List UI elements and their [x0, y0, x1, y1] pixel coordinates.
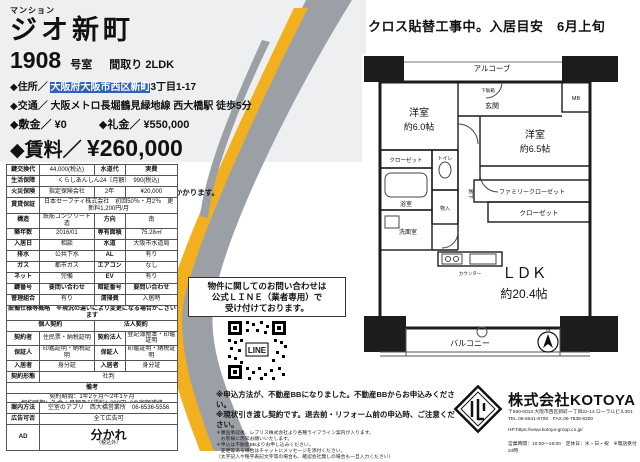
- cell-value: 身分証: [125, 361, 177, 372]
- cell-value: 有り: [125, 272, 177, 283]
- rent-value: ¥260,000: [87, 135, 183, 161]
- note-bold: ※現状引き渡し契約です。退去前・リフォーム前の申込時、ご注意ください。: [216, 410, 462, 430]
- table-row: 入居者 身分証 入居者 身分証: [7, 361, 178, 372]
- cell-label: ネット: [7, 272, 40, 283]
- cell-value: 印鑑証明・納税証明: [40, 346, 94, 361]
- cell-value: 社判: [40, 372, 178, 383]
- cell-label: 保証人: [94, 346, 125, 361]
- guide-table: 案内方法 空室のアプリ 西大橋営業所 06-6536-5556 広告可否 全て広…: [6, 402, 178, 451]
- table-row: AD 分かれ 〈税込外〉: [7, 425, 178, 451]
- cell-label: 入居日: [7, 239, 40, 250]
- family-closet-label: ファミリークローゼット: [499, 188, 565, 196]
- company-name: 株式会社KOTOYA: [508, 389, 638, 410]
- access-label: ◆交通／: [10, 101, 48, 112]
- address-label: ◆住所／: [10, 82, 48, 93]
- cell-label: 水道代: [94, 165, 125, 176]
- contract-header-personal: 個人契約: [7, 320, 95, 331]
- table-row: 契約者 住民票・納税証明 契約法人 登記簿謄本・印鑑証明: [7, 331, 178, 346]
- line-notice-box: 物件に関してのお問い合わせは 公式ＬＩＮＥ（業者専用）で 受け付けております。: [188, 277, 346, 317]
- ad-value-cell: 分かれ 〈税込外〉: [40, 425, 178, 451]
- cell-label: 契約形態: [7, 372, 40, 383]
- bath-label: 浴室: [400, 200, 412, 208]
- cell-label: 入居者: [7, 361, 40, 372]
- table-row: ガス 都市ガス エアコン なし: [7, 261, 178, 272]
- company-address: 〒550-0013 大阪市西区新町一丁目22-14 ローラルビル301: [508, 410, 638, 417]
- counter-label: カウンター: [459, 270, 482, 277]
- table-row: 個人契約 法人契約: [7, 320, 178, 331]
- table-row: 管理組合 有り 清掃費 入居時: [7, 294, 178, 305]
- notice-line: 公式ＬＩＮＥ（業者専用）で: [189, 292, 345, 303]
- madori-label: 間取り: [109, 59, 142, 71]
- table-row: 備考: [7, 383, 178, 394]
- construction-banner: クロス貼替工事中。入居目安 6月上旬: [368, 16, 634, 35]
- shikikin-label: ◆敷金／: [10, 119, 51, 131]
- table-row: 広告可否 全て広告可: [7, 414, 178, 425]
- wide-note: 設備仕様等概略 ※現況の違いにより変更になる場合がございます: [7, 305, 178, 320]
- cell-label: 築年数: [7, 228, 40, 239]
- alcove-label: アルコーブ: [474, 63, 511, 73]
- remarks-title: 備考: [7, 383, 178, 394]
- ldk-size: 約20.4帖: [500, 286, 547, 301]
- toilet-icon: [439, 162, 451, 178]
- cell-value: ¥20,000: [125, 187, 177, 198]
- cell-value: 印鑑証明・納税証明: [125, 346, 177, 361]
- closet1-label: クローゼット: [389, 156, 422, 164]
- access-line: ◆交通／ 大阪メトロ長堀鶴見緑地線 西大橋駅 徒歩5分: [10, 97, 360, 112]
- table-row: ネット 完備 EV 有り: [7, 272, 178, 283]
- door-arc: [458, 124, 478, 144]
- cell-value: 75.28㎡: [125, 228, 177, 239]
- table-row: 契約形態 社判: [7, 372, 178, 383]
- cell-label: 賃貸保証: [7, 198, 40, 214]
- room-line: 1908 号室 間取り 2LDK: [10, 47, 360, 74]
- cell-label: 管理組合: [7, 294, 40, 305]
- room1-label: 洋室: [409, 106, 429, 119]
- guide-value: 空室のアプリ 西大橋営業所 06-6536-5556: [40, 403, 178, 414]
- room-suffix: 号室: [70, 59, 92, 71]
- ad-value: 分かれ: [41, 429, 176, 441]
- kitchen-sink-icon: [470, 254, 496, 264]
- contract-header-corporate: 法人契約: [94, 320, 178, 331]
- table-row: 鍵番号 要問い合わせ 暗証番号 要問い合わせ: [7, 283, 178, 294]
- cell-label: 契約法人: [94, 331, 125, 346]
- cell-value: 有り: [125, 250, 177, 261]
- cell-label: 暗証番号: [94, 283, 125, 294]
- rent-label: ◆賃料／: [10, 140, 82, 161]
- mb-label: MB: [572, 96, 581, 102]
- toilet-label: トイレ: [437, 156, 452, 162]
- table-row: 排水 公共下水 AL 有り: [7, 250, 178, 261]
- address-line: ◆住所／ 大阪府大阪市西区新町3丁目1-17: [10, 78, 360, 93]
- company-url[interactable]: HP:https://www.kotoya-group.co.jp/: [508, 428, 638, 435]
- door-arc: [442, 232, 458, 248]
- company-telfax: TEL.06-6541-8708 FAX.06-7636-8200: [508, 417, 638, 424]
- cell-label: 鍵交換代: [7, 165, 40, 176]
- room2-label: 洋室: [525, 128, 545, 141]
- room-labels: 下駄箱 玄関 MB 洋室 約6.0帖 洋室 約6.5帖 クローゼット トイレ 廊…: [389, 87, 580, 348]
- balcony-label: バルコニー: [450, 339, 490, 348]
- closet2-label: クローゼット: [520, 208, 559, 217]
- table-row: 構造 鉄筋コンクリート造 方向 南: [7, 214, 178, 229]
- address-highlight: 大阪府大阪市西区新町: [50, 82, 150, 93]
- guide-label: 案内方法: [7, 403, 40, 414]
- table-row: 入居日 相談 水道 大阪市水道局: [7, 239, 178, 250]
- cell-value: 住民票・納税証明: [40, 331, 94, 346]
- cell-label: 専有面積: [94, 228, 125, 239]
- company-hours: 営業時間：10:00〜19:00 定休日：水・日・祝 ※電話受付24時: [508, 440, 638, 454]
- cell-value: なし: [125, 261, 177, 272]
- table-row: 築年数 2016/01 専有面積 75.28㎡: [7, 228, 178, 239]
- table-row: 設備仕様等概略 ※現況の違いにより変更になる場合がございます: [7, 305, 178, 320]
- storage-label: 物入: [440, 205, 450, 212]
- ad-note: 〈税込外〉: [41, 441, 176, 447]
- cell-label: AL: [94, 250, 125, 261]
- cell-value: 実費: [125, 165, 177, 176]
- cell-value: 要問い合わせ: [40, 283, 94, 294]
- cell-value: 指定保険会社: [40, 187, 94, 198]
- cell-label: 排水: [7, 250, 40, 261]
- ldk-label: ＬＤＫ: [501, 265, 546, 282]
- cell-value: 登記簿謄本・印鑑証明: [125, 331, 177, 346]
- cell-label: 契約者: [7, 331, 40, 346]
- cell-value: くらしあんしん24〔月額〕 990(税込): [40, 176, 178, 187]
- cell-label: 構造: [7, 214, 40, 229]
- reikin-value: ¥550,000: [143, 119, 189, 131]
- cell-value: 身分証: [40, 361, 94, 372]
- remarks-line: 契約期間：1年2ヶ月〜2年1ヶ月: [8, 394, 176, 401]
- access-value: 大阪メトロ長堀鶴見緑地線 西大橋駅 徒歩5分: [50, 101, 251, 112]
- cell-label: 方向: [94, 214, 125, 229]
- cell-label: 入居者: [94, 361, 125, 372]
- cell-label: 保証人: [7, 346, 40, 361]
- wash-label: 洗面室: [399, 228, 417, 236]
- property-name: ジオ新町: [10, 16, 360, 46]
- cell-value: 大阪市水道局: [125, 239, 177, 250]
- madori-value: 2LDK: [145, 59, 174, 71]
- table-row: 案内方法 空室のアプリ 西大橋営業所 06-6536-5556: [7, 403, 178, 414]
- qr-line-label: LINE: [248, 346, 267, 355]
- cell-label: ガス: [7, 261, 40, 272]
- cell-value: 鉄筋コンクリート造: [40, 214, 94, 229]
- cell-value: 日本セーフティ株式会社 初回50％・月2％ 更新料1,200円/月: [40, 198, 178, 214]
- cell-label: 火災保険: [7, 187, 40, 198]
- cell-label: 水道: [94, 239, 125, 250]
- cell-value: 2016/01: [40, 228, 94, 239]
- floor-plan: アルコーブ: [362, 54, 638, 362]
- reikin-label: ◆礼金／: [99, 119, 140, 131]
- entrance-label: 玄関: [485, 101, 499, 110]
- sink-icon: [385, 216, 399, 228]
- cell-value: 相談: [40, 239, 94, 250]
- cell-value: 公共下水: [40, 250, 94, 261]
- kotoya-logo: [452, 385, 504, 441]
- north-label: N: [546, 327, 550, 333]
- line-qr-code: LINE: [226, 319, 288, 381]
- ad-ok-label: 広告可否: [7, 414, 40, 425]
- deposit-line: ◆敷金／ ¥0 ◆礼金／ ¥550,000: [10, 116, 360, 132]
- cell-value: 要問い合わせ: [125, 283, 177, 294]
- company-block: 株式会社KOTOYA 〒550-0013 大阪市西区新町一丁目22-14 ローラ…: [452, 385, 638, 454]
- cell-label: EV: [94, 272, 125, 283]
- cell-value: 入居時: [125, 294, 177, 305]
- cell-value: 完備: [40, 272, 94, 283]
- room-number: 1908: [10, 47, 61, 73]
- cell-label: 鍵番号: [7, 283, 40, 294]
- door-arc: [480, 174, 498, 192]
- cell-label: エアコン: [94, 261, 125, 272]
- ad-ok-value: 全て広告可: [40, 414, 178, 425]
- address-rest: 3丁目1-17: [150, 82, 196, 93]
- note-small: （太字記入や略字表記文字等の場合も、確認会社無しの場合も一旦入力ください）: [216, 455, 462, 461]
- cell-value: 都市ガス: [40, 261, 94, 272]
- room2-size: 約6.5帖: [520, 143, 551, 154]
- rent-line: ◆賃料／ ¥260,000: [10, 135, 360, 162]
- shikikin-value: ¥0: [55, 119, 67, 131]
- compass-icon: N: [538, 327, 558, 352]
- table-row: 生活保障 くらしあんしん24〔月額〕 990(税込): [7, 176, 178, 187]
- table-row: 火災保険 指定保険会社 2年 ¥20,000: [7, 187, 178, 198]
- cell-value: 44,000(税込): [40, 165, 94, 176]
- cell-value: 南: [125, 214, 177, 229]
- notice-line: 物件に関してのお問い合わせは: [189, 281, 345, 292]
- table-row: 保証人 印鑑証明・納税証明 保証人 印鑑証明・納税証明: [7, 346, 178, 361]
- shoebox-label: 下駄箱: [481, 87, 495, 94]
- notice-line: 受け付けております。: [189, 303, 345, 314]
- spec-table: 鍵交換代 44,000(税込) 水道代 実費 生活保障 くらしあんしん24〔月額…: [6, 164, 178, 416]
- ad-label: AD: [7, 425, 40, 451]
- hallway-label: 廊下: [467, 189, 474, 199]
- cell-label: 清掃費: [94, 294, 125, 305]
- cell-value: 有り: [40, 294, 94, 305]
- bathtub-icon: [385, 173, 427, 197]
- table-row: 賃貸保証 日本セーフティ株式会社 初回50％・月2％ 更新料1,200円/月: [7, 198, 178, 214]
- table-row: 鍵交換代 44,000(税込) 水道代 実費: [7, 165, 178, 176]
- cell-value: 2年: [94, 187, 125, 198]
- note-bold: ※申込方法が、不動産BBになりました。不動産BBからお申込みください。: [216, 390, 462, 410]
- room1-size: 約6.0帖: [404, 121, 435, 132]
- cell-label: 生活保障: [7, 176, 40, 187]
